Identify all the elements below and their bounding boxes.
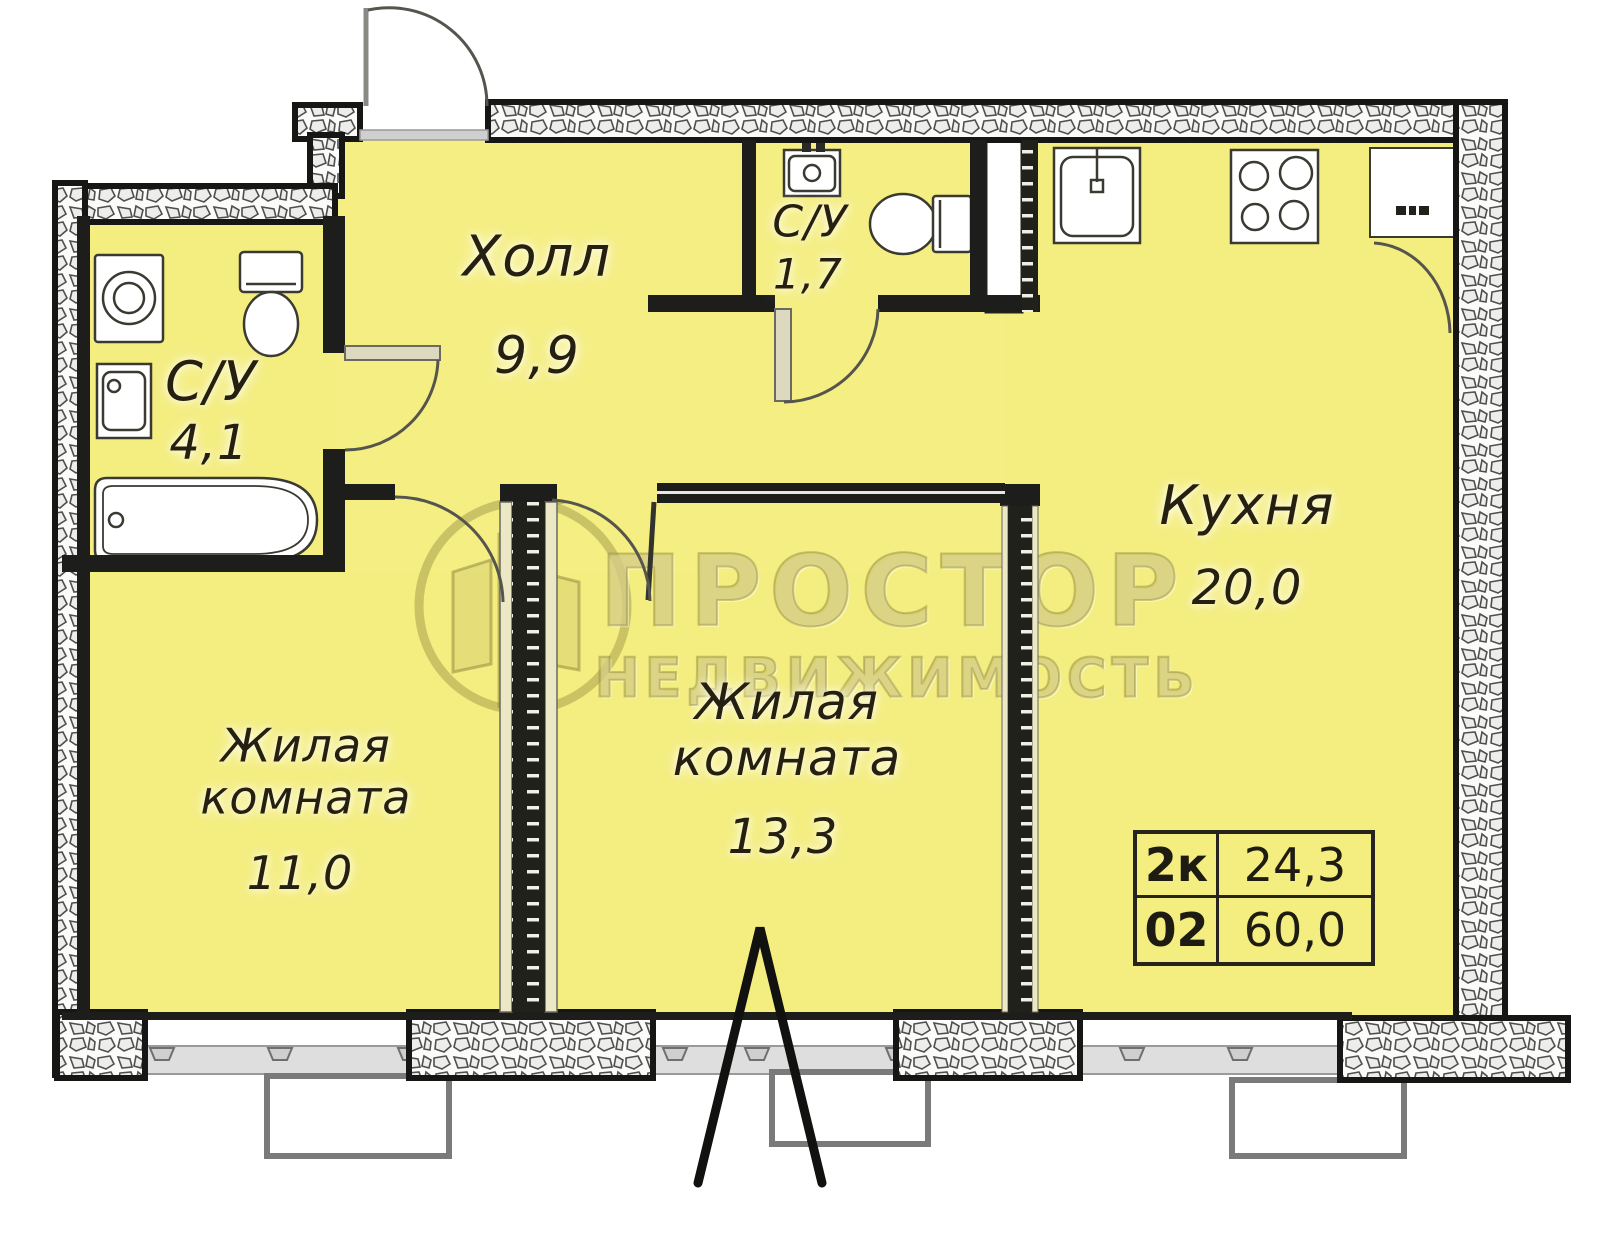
wall-bath-small-right <box>970 140 986 312</box>
bath-small-door <box>775 309 878 402</box>
partition-cap <box>500 484 557 502</box>
wall-hall-living1 <box>323 484 395 500</box>
wall-bottom-block <box>57 1012 145 1078</box>
wall-bath-small-left <box>742 140 756 312</box>
wall-bottom-block <box>409 1012 653 1078</box>
room-label-kitchen: Кухня <box>1159 476 1334 536</box>
partition-shaft-side <box>1022 140 1038 312</box>
floor-plan-walls-layer <box>0 0 1600 1260</box>
apartment-info-table: 2к 24,3 02 60,0 <box>1133 830 1375 966</box>
room-area-kitchen: 20,0 <box>1192 562 1303 616</box>
partition-living-rooms <box>500 502 557 1012</box>
wall-right <box>1456 102 1505 1027</box>
room-label-bath-small: С/У <box>772 197 847 246</box>
wall-bath-main-right-lower <box>323 449 345 572</box>
total-area: 60,0 <box>1219 898 1371 962</box>
balcony-door-triangle <box>698 928 822 1183</box>
wall-bottom-right-block <box>1340 1018 1568 1080</box>
partition-kitchen <box>1002 506 1038 1012</box>
room-area-living2: 13,3 <box>728 811 839 865</box>
wall-bath-main-bottom <box>62 555 345 572</box>
room-label-living2: Жилая комната <box>622 674 952 786</box>
living-area-total: 24,3 <box>1219 834 1371 898</box>
wall-kitchen-cap <box>1000 484 1040 506</box>
wall-topleft <box>55 186 335 222</box>
room-area-living1: 11,0 <box>247 848 353 900</box>
floor-plan: ПРОСТОР НЕДВИЖИМОСТЬ <box>0 0 1600 1260</box>
entrance-door <box>366 8 487 106</box>
bath-main-door <box>345 346 440 450</box>
apartment-type: 2к <box>1137 834 1219 898</box>
living1-door <box>395 497 503 602</box>
room-label-bath-main: С/У <box>165 352 257 412</box>
living2-door <box>552 500 654 601</box>
wall-bottom-block <box>896 1012 1080 1078</box>
refrigerator-door-arc <box>1374 243 1450 333</box>
room-label-hall: Холл <box>463 227 611 290</box>
wall-bath-main-right-upper <box>323 216 345 353</box>
room-area-bath-small: 1,7 <box>773 250 843 297</box>
apartment-number: 02 <box>1137 898 1219 962</box>
entrance-threshold <box>360 130 488 140</box>
wall-bath-small-bottom-right <box>878 295 1040 312</box>
wall-centerline <box>657 491 1005 494</box>
room-label-living1: Жилая комната <box>156 720 456 823</box>
wall-top <box>488 102 1505 140</box>
room-area-bath-main: 4,1 <box>169 417 248 471</box>
wall-bath-small-bottom-left <box>648 295 775 312</box>
room-area-hall: 9,9 <box>494 327 580 385</box>
